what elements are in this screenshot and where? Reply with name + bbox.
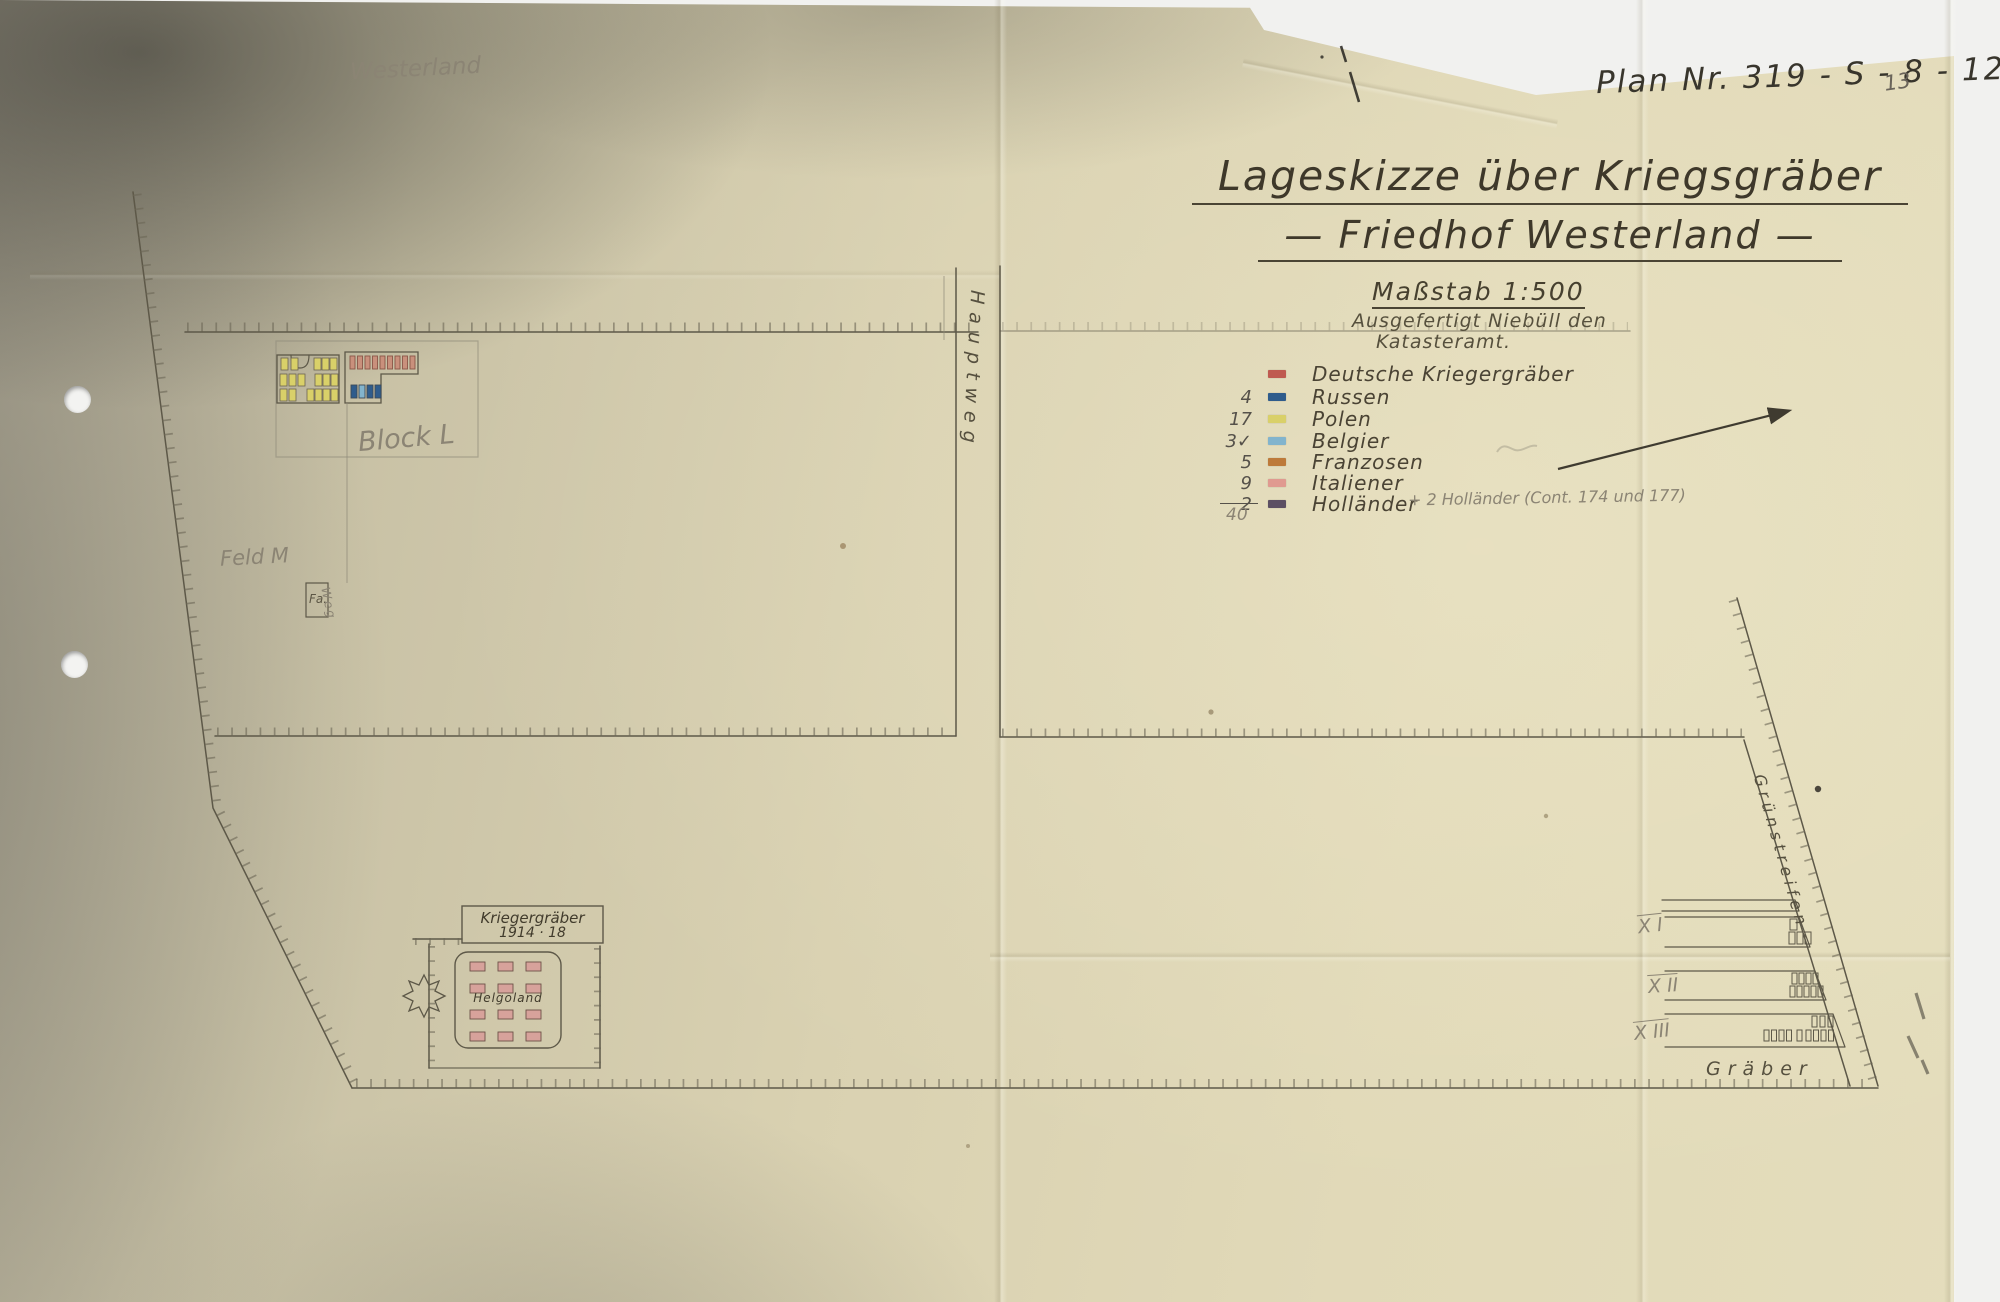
legend-swatch-deutsche xyxy=(1268,370,1286,378)
middle-boundary-line xyxy=(215,732,1744,737)
memorial-monument-star xyxy=(403,975,445,1017)
legend-total: 40 xyxy=(1226,505,1248,525)
row-x3-graves xyxy=(1764,1016,1834,1041)
legend-item: 17 Polen xyxy=(1222,407,1372,431)
title-line-2: — Friedhof Westerland — xyxy=(1258,213,1841,262)
legend-item: 2 Holländer xyxy=(1222,492,1418,516)
right-boundary-gruenstreifen xyxy=(1733,598,1878,1086)
issued-line-1: Ausgefertigt Niebüll den xyxy=(1352,310,1607,332)
legend-swatch-belgier xyxy=(1268,437,1286,445)
helgoland-label: Helgoland xyxy=(455,991,561,1005)
polen-graves xyxy=(280,358,338,401)
row-x2-graves xyxy=(1790,973,1823,997)
graeber-label: Gräber xyxy=(1706,1058,1814,1080)
deutsche-graves-row xyxy=(350,356,415,369)
russen-belgier-graves xyxy=(351,385,381,398)
bottom-boundary-line xyxy=(352,1084,1878,1089)
row-x3-label: X III xyxy=(1633,1019,1671,1045)
memorial-banner-line2: 1914 · 18 xyxy=(462,925,603,941)
legend-swatch-franzosen xyxy=(1268,458,1286,466)
scanned-plan-page: Westerland Plan Nr. 319 - S - 8 - 12 13 … xyxy=(0,0,2000,1302)
row-x2-label: X II xyxy=(1647,974,1679,998)
feld-m-label: Feld M xyxy=(219,543,289,571)
legend-item: Deutsche Kriegergräber xyxy=(1222,362,1574,386)
pointer-arrow xyxy=(1558,411,1788,469)
page-number: 13 xyxy=(1882,68,1912,95)
legend-swatch-hollaender xyxy=(1268,500,1286,508)
title-block: Lageskizze über Kriegsgräber — Friedhof … xyxy=(1160,152,1940,262)
legend-sum-line xyxy=(1220,503,1258,504)
legend-item: 4 Russen xyxy=(1222,385,1390,409)
scale-label: Maßstab 1:500 xyxy=(1372,277,1585,309)
grave-row-strips xyxy=(1662,900,1845,1047)
row-x1-label: X I xyxy=(1637,914,1664,938)
feld-m-utility-box xyxy=(306,403,347,617)
title-line-1: Lageskizze über Kriegsgräber xyxy=(1192,152,1908,205)
issued-line-2: Katasteramt. xyxy=(1376,331,1511,353)
legend-swatch-russen xyxy=(1268,393,1286,401)
legend-swatch-polen xyxy=(1268,415,1286,423)
legend-swatch-italiener xyxy=(1268,479,1286,487)
